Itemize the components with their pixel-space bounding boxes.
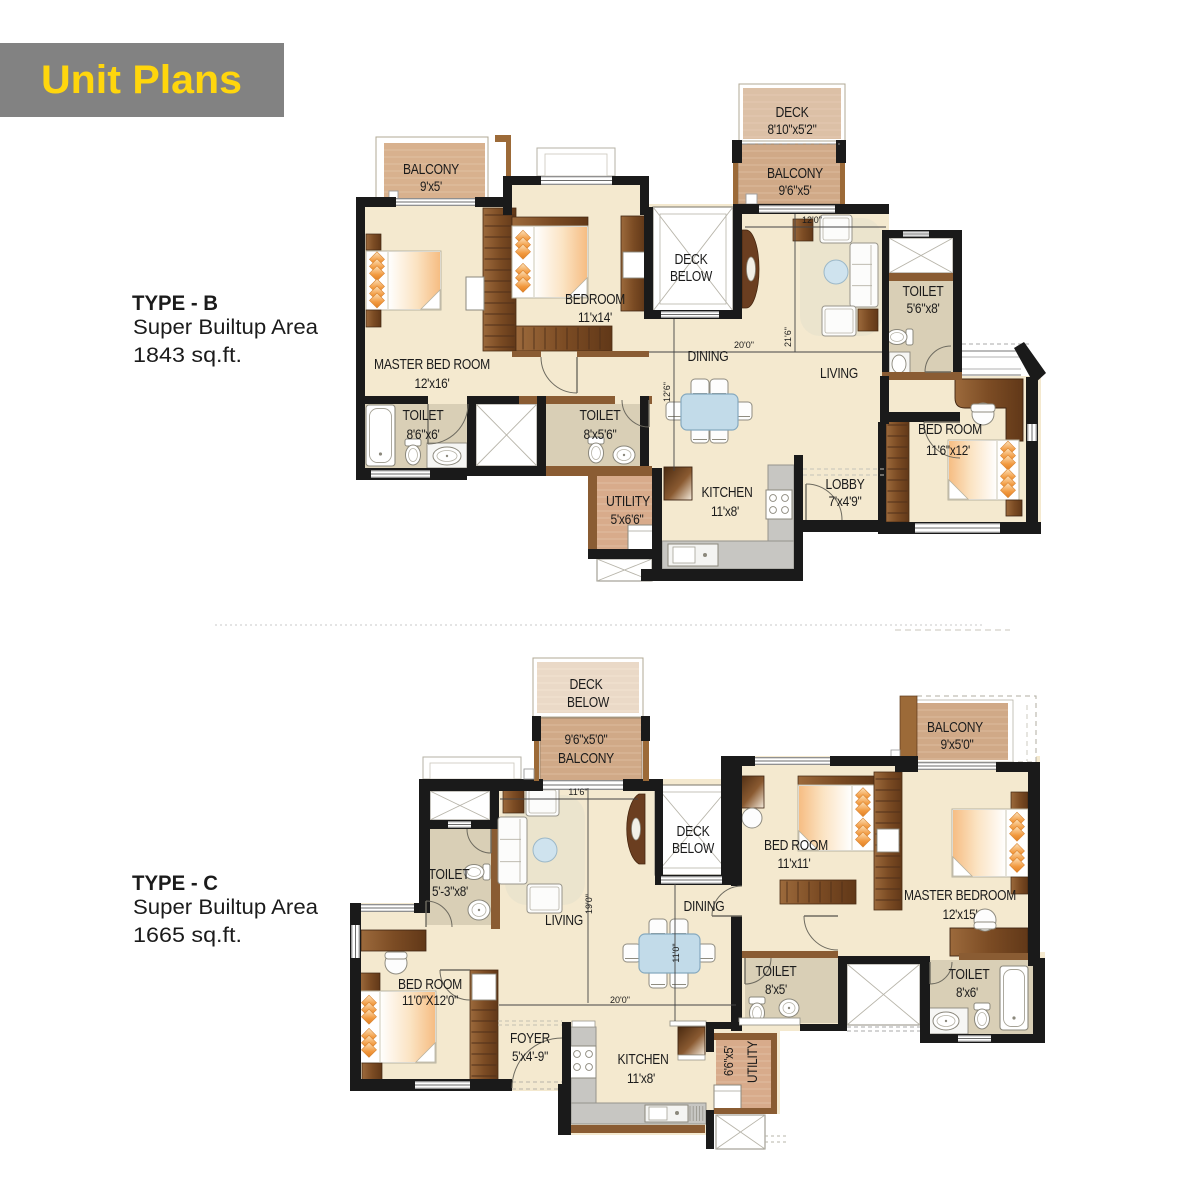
svg-text:8'6"x6': 8'6"x6' [407,426,440,442]
svg-text:MASTER BED ROOM: MASTER BED ROOM [374,356,490,373]
svg-text:11'x8': 11'x8' [711,503,739,519]
svg-text:21'6": 21'6" [783,327,793,347]
svg-text:BELOW: BELOW [567,694,610,711]
svg-text:11'0"X12'0": 11'0"X12'0" [402,992,458,1008]
svg-text:KITCHEN: KITCHEN [702,484,753,501]
svg-text:TOILET: TOILET [949,966,990,983]
svg-text:TOILET: TOILET [403,407,444,424]
svg-text:BED ROOM: BED ROOM [764,837,828,854]
svg-text:6'6"x5': 6'6"x5' [721,1046,736,1076]
svg-text:7'x4'9": 7'x4'9" [829,493,862,509]
svg-text:MASTER BEDROOM: MASTER BEDROOM [904,887,1016,904]
svg-text:DINING: DINING [688,348,729,365]
svg-text:20'0": 20'0" [734,340,754,350]
svg-text:12'0": 12'0" [802,215,822,225]
svg-text:DECK: DECK [677,823,710,840]
svg-text:Unit Plans: Unit Plans [41,58,242,102]
svg-text:BED ROOM: BED ROOM [398,976,462,993]
svg-text:TOILET: TOILET [903,283,944,300]
svg-text:5'-3"x8': 5'-3"x8' [432,883,468,899]
svg-text:9'x5'0": 9'x5'0" [941,736,974,752]
svg-text:Super Builtup Area: Super Builtup Area [133,896,318,919]
svg-text:8'10"x5'2": 8'10"x5'2" [768,121,817,137]
svg-text:5'x6'6": 5'x6'6" [611,511,644,527]
svg-text:Super Builtup Area: Super Builtup Area [133,316,318,339]
svg-text:8'x6': 8'x6' [956,984,978,1000]
svg-text:12'6": 12'6" [662,382,672,402]
svg-text:11'x8': 11'x8' [627,1070,655,1086]
svg-text:9'6"x5'0": 9'6"x5'0" [565,731,608,747]
svg-text:TOILET: TOILET [429,866,470,883]
svg-text:BALCONY: BALCONY [927,719,983,736]
svg-text:1843 sq.ft.: 1843 sq.ft. [133,344,242,367]
svg-text:DECK: DECK [570,676,603,693]
svg-text:BEDROOM: BEDROOM [565,291,625,308]
svg-text:12'x15': 12'x15' [943,906,978,922]
svg-text:LIVING: LIVING [545,912,583,929]
svg-text:20'0": 20'0" [610,995,630,1005]
svg-text:11'6"x12': 11'6"x12' [926,442,970,458]
svg-text:12'x16': 12'x16' [415,375,450,391]
svg-text:11'x14': 11'x14' [578,309,612,325]
svg-text:BELOW: BELOW [670,268,713,285]
svg-text:5'x4'-9": 5'x4'-9" [512,1048,548,1064]
svg-text:TOILET: TOILET [580,407,621,424]
svg-text:LIVING: LIVING [820,365,858,382]
svg-text:BALCONY: BALCONY [558,750,614,767]
svg-text:9'6"x5': 9'6"x5' [779,182,812,198]
svg-text:UTILITY: UTILITY [606,493,650,510]
svg-text:TOILET: TOILET [756,963,797,980]
svg-text:DECK: DECK [776,104,809,121]
svg-text:DINING: DINING [684,898,725,915]
svg-text:UTILITY: UTILITY [744,1040,760,1083]
svg-text:8'x5'6": 8'x5'6" [584,426,617,442]
svg-text:BELOW: BELOW [672,840,715,857]
svg-text:TYPE - B: TYPE - B [132,292,218,315]
svg-text:LOBBY: LOBBY [826,476,865,493]
svg-text:11'x11': 11'x11' [778,855,811,871]
svg-text:DECK: DECK [675,251,708,268]
svg-text:BALCONY: BALCONY [403,161,459,178]
svg-text:5'6"x8': 5'6"x8' [907,300,940,316]
svg-text:TYPE - C: TYPE - C [132,872,218,895]
svg-text:1665 sq.ft.: 1665 sq.ft. [133,924,242,947]
svg-text:KITCHEN: KITCHEN [618,1051,669,1068]
svg-text:8'x5': 8'x5' [765,981,787,997]
svg-text:9'x5': 9'x5' [420,178,442,194]
svg-text:BED ROOM: BED ROOM [918,421,982,438]
svg-text:11'6": 11'6" [568,787,587,797]
svg-text:19'0": 19'0" [584,894,594,914]
svg-text:FOYER: FOYER [510,1030,550,1047]
svg-text:BALCONY: BALCONY [767,165,823,182]
svg-text:11'0": 11'0" [671,943,681,962]
